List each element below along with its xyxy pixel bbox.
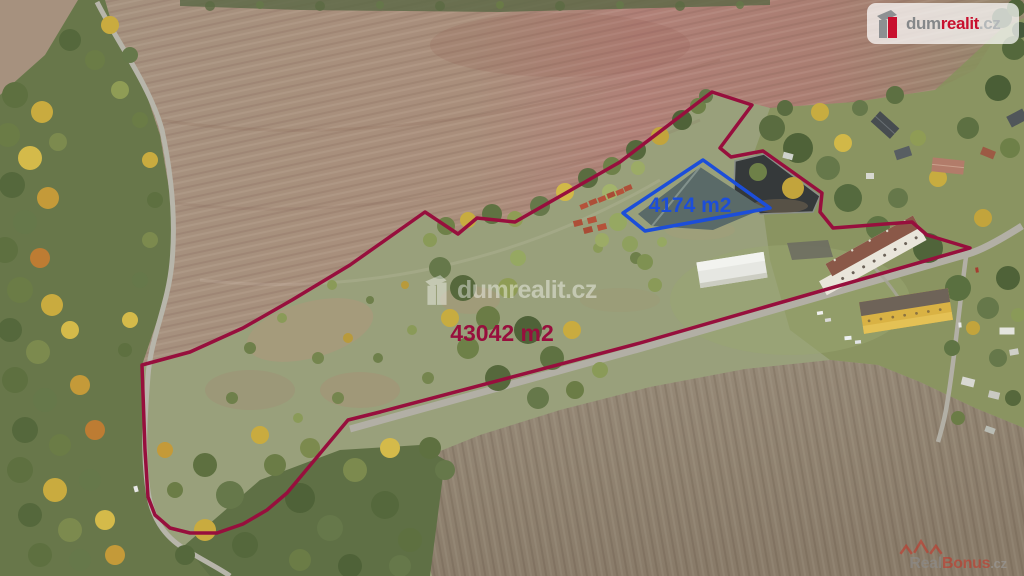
- realbonus-text-bonus: Bonus: [942, 555, 990, 572]
- pond-parcel-area-label: 4174 m2: [649, 194, 732, 217]
- aerial-scene: 4174 m2 43042 m2: [0, 0, 1024, 576]
- realbonus-text: RealBonus.cz: [895, 555, 1021, 573]
- logo-text-tld: .cz: [979, 14, 1000, 33]
- logo-text-dum: dum: [906, 14, 941, 33]
- realbonus-text-tld: .cz: [990, 556, 1006, 571]
- realbonus-text-real: Real: [909, 555, 942, 572]
- field-dark-patch: [430, 13, 690, 77]
- realbonus-crown-icon: [895, 539, 947, 555]
- gravel-area: [787, 240, 833, 260]
- main-parcel-area-label: 43042 m2: [450, 320, 554, 346]
- logo-text: dumrealit.cz: [906, 14, 1000, 34]
- dumrealit-house-icon: [876, 8, 900, 40]
- aerial-photo: 4174 m2 43042 m2 dumrealit.cz dumrealit.…: [0, 0, 1024, 576]
- realbonus-watermark: RealBonus.cz: [895, 539, 1021, 573]
- logo-text-realit: realit: [941, 14, 979, 33]
- dumrealit-logo: dumrealit.cz: [867, 3, 1019, 44]
